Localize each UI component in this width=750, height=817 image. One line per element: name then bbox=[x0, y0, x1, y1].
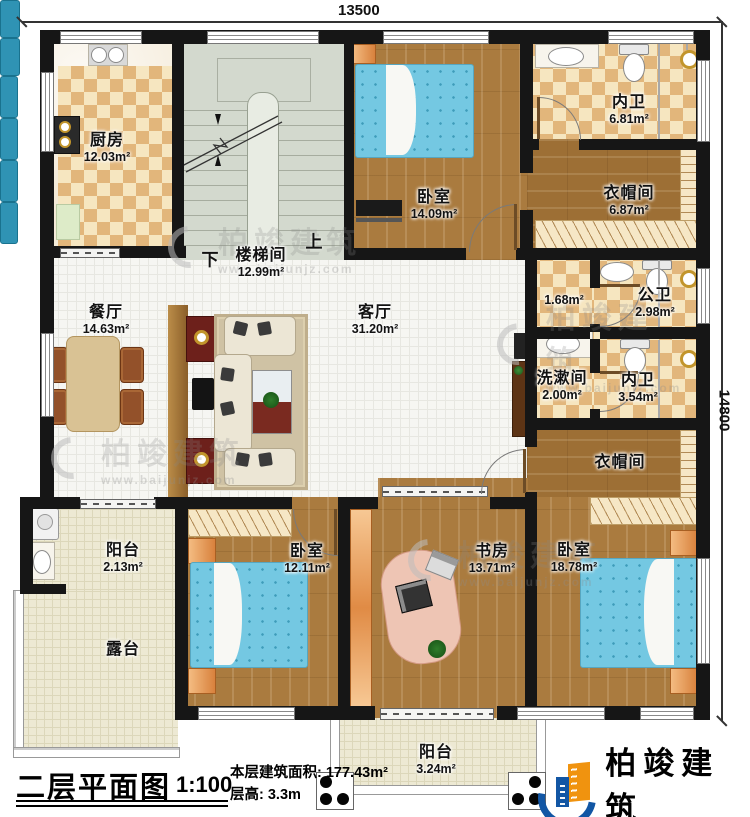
bed-left-fold bbox=[214, 563, 242, 665]
stove-burner bbox=[59, 121, 71, 133]
wall-segment bbox=[154, 497, 175, 509]
wall-segment bbox=[516, 248, 525, 260]
terrace-railing bbox=[13, 747, 180, 758]
room-label-hallway: 1.68m² bbox=[544, 293, 584, 307]
window bbox=[41, 72, 54, 152]
room-label-dining: 餐厅14.63m² bbox=[83, 304, 130, 336]
floor-plan-canvas: 13500 14800 柏竣建筑 www.baijunjz.com 柏竣建筑 w… bbox=[0, 0, 750, 817]
bedroom-top-tv-stand bbox=[356, 218, 402, 222]
wardrobe-band bbox=[188, 509, 292, 537]
public-bath-sink bbox=[600, 262, 634, 282]
wall-segment bbox=[579, 139, 696, 150]
sliding-door bbox=[382, 486, 488, 497]
ensuite-top-sink bbox=[548, 47, 584, 66]
wardrobe-band bbox=[535, 220, 698, 250]
logo-building-blue-icon bbox=[556, 777, 569, 807]
washing-machine-drum bbox=[37, 514, 53, 530]
bed-top-fold bbox=[386, 65, 416, 155]
wall-segment bbox=[533, 139, 539, 150]
window bbox=[41, 333, 54, 417]
window bbox=[383, 31, 489, 44]
room-label-bedroom-top: 卧室14.09m² bbox=[411, 189, 458, 221]
room-label-closet-mid: 衣帽间 bbox=[594, 454, 645, 472]
tv-feature-wall bbox=[168, 305, 188, 497]
room-label-balcony-bottom: 阳台3.24m² bbox=[416, 744, 456, 776]
throw-pillow bbox=[258, 452, 273, 467]
kitchen-sink-basin2 bbox=[108, 47, 124, 63]
room-label-study: 书房13.71m² bbox=[469, 543, 516, 575]
window bbox=[198, 707, 295, 720]
dining-chair bbox=[120, 389, 144, 425]
cabinet-plant2 bbox=[194, 452, 209, 467]
wall-segment bbox=[590, 409, 600, 430]
window bbox=[608, 31, 694, 44]
floor-area-line: 本层建筑面积: 177.43m² bbox=[230, 762, 388, 784]
room-label-kitchen: 厨房12.03m² bbox=[84, 132, 131, 164]
kitchen-sink-basin bbox=[91, 47, 107, 63]
dimension-right-value: 14800 bbox=[716, 389, 733, 433]
bed-pillow bbox=[0, 160, 18, 202]
nightstand bbox=[188, 538, 216, 564]
room-label-bedroom-right: 卧室18.78m² bbox=[551, 542, 598, 574]
toilet-bowl bbox=[624, 347, 646, 374]
cabinet-plant bbox=[194, 330, 209, 345]
dimension-top-value: 13500 bbox=[338, 2, 380, 19]
toilet-bowl bbox=[623, 53, 645, 82]
throw-pillow bbox=[220, 367, 235, 382]
hall-cabinet-plant bbox=[514, 366, 523, 375]
tv-icon bbox=[192, 378, 214, 410]
window bbox=[697, 558, 710, 664]
wall-segment bbox=[20, 584, 66, 594]
stair-up-label: 上 bbox=[306, 228, 323, 253]
brand-logo: 柏竣建筑 www.baijunjz.com bbox=[540, 738, 750, 817]
bedroom-top-tv bbox=[356, 200, 402, 216]
room-label-washroom: 洗漱间2.00m² bbox=[536, 370, 587, 402]
study-cabinet bbox=[350, 509, 372, 707]
room-label-ensuite-mid: 内卫3.54m² bbox=[618, 372, 658, 404]
nightstand bbox=[352, 44, 376, 64]
wall-segment bbox=[172, 30, 184, 246]
dimension-line-top bbox=[22, 21, 722, 23]
window bbox=[697, 60, 710, 142]
stove-burner2 bbox=[59, 136, 71, 148]
sliding-door bbox=[60, 248, 120, 258]
sliding-door bbox=[380, 708, 494, 720]
wall-segment bbox=[20, 497, 33, 594]
window bbox=[640, 707, 694, 720]
balcony-sink bbox=[33, 550, 51, 574]
title-info: 本层建筑面积: 177.43m² 层高: 3.3m bbox=[230, 762, 388, 807]
throw-pillow bbox=[235, 452, 250, 467]
shower-divider bbox=[658, 44, 660, 140]
hall-shelf bbox=[514, 333, 525, 359]
wall-segment bbox=[175, 497, 188, 717]
wall-segment bbox=[338, 497, 350, 720]
brand-name: 柏竣建筑 bbox=[605, 738, 750, 817]
dining-table bbox=[66, 336, 120, 432]
wall-segment bbox=[533, 248, 696, 260]
plan-scale: 1:100 bbox=[176, 772, 232, 798]
nightstand bbox=[670, 530, 698, 556]
door-leaf bbox=[537, 97, 540, 139]
throw-pillow bbox=[220, 401, 235, 416]
bed-pillow bbox=[0, 38, 20, 76]
bed-right bbox=[580, 558, 698, 668]
wall-segment bbox=[535, 327, 590, 339]
room-label-public-bath: 公卫2.98m² bbox=[635, 287, 675, 319]
logo-building-orange-icon bbox=[568, 762, 590, 802]
wall-segment bbox=[590, 252, 600, 288]
wall-segment bbox=[590, 324, 600, 332]
bed-pillow bbox=[0, 118, 18, 160]
door-leaf bbox=[600, 284, 640, 287]
throw-pillow bbox=[257, 321, 272, 336]
wall-segment bbox=[520, 30, 533, 173]
room-label-living: 客厅31.20m² bbox=[352, 304, 399, 336]
door-leaf bbox=[334, 509, 337, 555]
bed-pillow bbox=[0, 202, 18, 244]
wall-segment bbox=[590, 339, 600, 373]
terrace-railing bbox=[13, 590, 24, 757]
wall-segment bbox=[600, 327, 696, 339]
table-plant bbox=[263, 392, 279, 408]
window bbox=[697, 268, 710, 324]
wall-segment bbox=[354, 248, 466, 260]
door-leaf bbox=[523, 449, 526, 493]
wall-segment bbox=[525, 492, 537, 502]
brand-logo-icon bbox=[540, 759, 597, 817]
room-label-ensuite-top: 内卫6.81m² bbox=[609, 94, 649, 126]
title-underline bbox=[16, 800, 228, 802]
wall-segment bbox=[535, 418, 590, 430]
room-label-closet-top: 衣帽间6.87m² bbox=[603, 185, 654, 217]
bed-pillow bbox=[0, 0, 20, 38]
cutting-board bbox=[56, 204, 80, 240]
title-underline bbox=[16, 805, 228, 807]
floor-terrace bbox=[20, 590, 178, 752]
shower-divider bbox=[658, 340, 660, 423]
window bbox=[60, 31, 142, 44]
bed-right-fold bbox=[644, 559, 674, 665]
wardrobe-band bbox=[590, 497, 698, 525]
room-label-terrace: 露台 bbox=[106, 641, 140, 659]
wall-segment bbox=[490, 497, 525, 509]
wall-segment bbox=[350, 497, 378, 509]
stair-down-label: 下 bbox=[202, 246, 219, 271]
door-leaf bbox=[514, 204, 517, 250]
wall-segment bbox=[525, 502, 537, 720]
nightstand bbox=[188, 668, 216, 694]
column-dot bbox=[512, 793, 524, 805]
stair-direction-arrow bbox=[180, 108, 285, 173]
room-label-balcony-left: 阳台2.13m² bbox=[103, 542, 143, 574]
window bbox=[207, 31, 319, 44]
dimension-line-right bbox=[721, 21, 723, 721]
bed-left bbox=[190, 562, 308, 668]
room-label-bedroom-left: 卧室12.11m² bbox=[284, 543, 330, 575]
wall-segment bbox=[175, 497, 292, 509]
dining-chair bbox=[120, 347, 144, 383]
wall-segment bbox=[600, 418, 696, 430]
window bbox=[517, 707, 605, 720]
bed-pillow bbox=[0, 76, 18, 118]
sliding-door bbox=[80, 499, 156, 509]
floor-height-line: 层高: 3.3m bbox=[230, 784, 388, 806]
desk-plant bbox=[428, 640, 446, 658]
room-label-stairwell: 楼梯间12.99m² bbox=[235, 247, 286, 279]
nightstand bbox=[670, 668, 698, 694]
wall-segment bbox=[344, 30, 354, 260]
